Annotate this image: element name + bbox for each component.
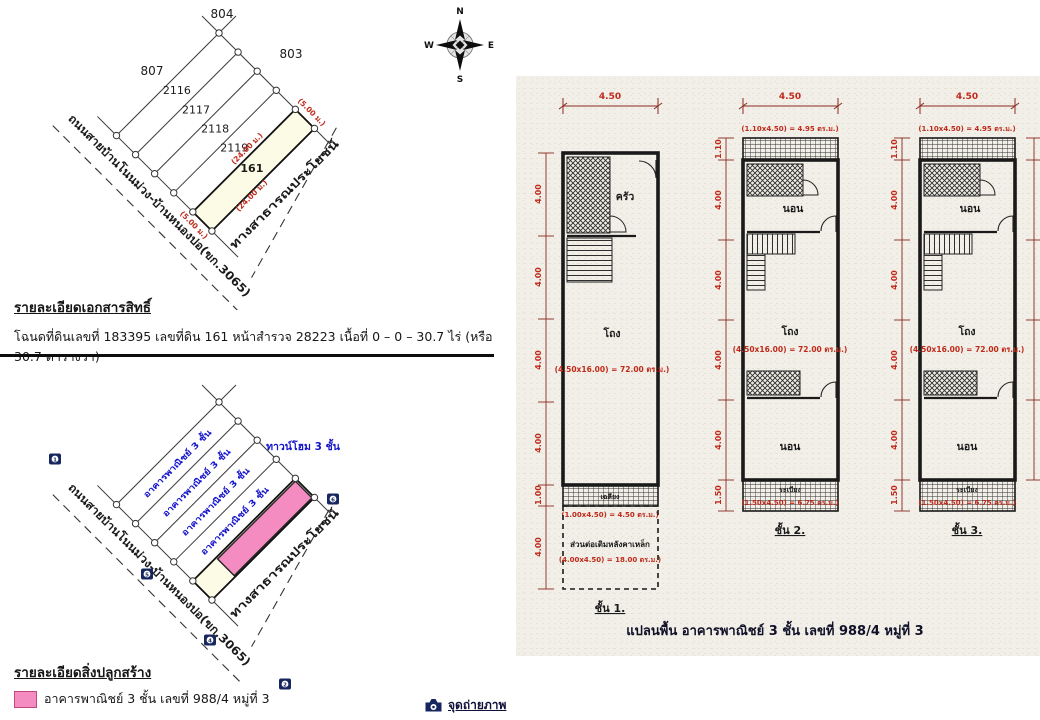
door-arc-upper	[821, 216, 836, 232]
compass-s: S	[457, 75, 463, 84]
balcony-area-text: (1.10x4.50) = 4.95 ตร.ม.)	[918, 125, 1015, 133]
hall-area-text: (4.50x16.00) = 72.00 ตร.ม.)	[733, 345, 848, 354]
floor-plan-1: 4.50 ครัว โถง (4.50x16.00) = 72.00 ตร.ม.…	[518, 88, 688, 633]
parcel-803: 803	[280, 47, 303, 61]
dim-label: 1.10	[890, 139, 899, 159]
porch-label: เฉลียง	[601, 493, 621, 501]
dim-label: 4.00	[714, 190, 723, 210]
front-balcony-hatch	[743, 138, 838, 160]
building-legend: รายละเอียดสิ่งปลูกสร้าง อาคารพาณิชย์ 3 ช…	[14, 661, 374, 709]
balcony-label: ระเบียง	[779, 486, 801, 494]
bathroom-hatch-mid	[747, 371, 800, 395]
parcel-number: 2118	[201, 122, 229, 135]
deed-details-heading: รายละเอียดเอกสารสิทธิ์	[14, 296, 504, 318]
room-label-hall: โถง	[957, 325, 975, 338]
kitchen-door-arc	[610, 216, 626, 232]
dim-label: 4.00	[714, 350, 723, 370]
strip-building-label: อาคารพาณิชย์ 3 ชั้น	[159, 445, 233, 519]
extension-area-text: (4.00x4.50) = 18.00 ตร.ม.)	[559, 556, 661, 564]
compass-rose: N S W E	[424, 4, 496, 84]
dim-label: 4.00	[714, 270, 723, 290]
plan2-width-dim: 4.50	[779, 92, 801, 102]
plan3-width-dim: 4.50	[956, 92, 978, 102]
dim-label: 4.00	[534, 537, 543, 557]
compass-n: N	[456, 7, 464, 17]
dim-label: 4.00	[534, 184, 543, 204]
plan2-floor-label: ชั้น 2.	[775, 522, 806, 537]
legend-item: อาคารพาณิชย์ 3 ชั้น เลขที่ 988/4 หมู่ที่…	[14, 689, 374, 709]
entrance-door-arc	[639, 160, 656, 178]
balcony-area-bottom-text: (1.50x4.50) = 6.75 ตร.ม.)	[918, 499, 1015, 507]
legend-pink-swatch	[14, 691, 37, 708]
hall-area-text: (4.50x16.00) = 72.00 ตร.ม.)	[910, 345, 1025, 354]
section-divider	[0, 354, 494, 357]
room-label-bed-top: นอน	[960, 203, 981, 215]
deed-details-body: โฉนดที่ดินเลขที่ 183395 เลขที่ดิน 161 หน…	[14, 327, 504, 367]
dim-label: 1.50	[714, 485, 723, 505]
photo-note: จุดถ่ายภาพ	[424, 696, 506, 715]
room-label-kitchen: ครัว	[616, 191, 635, 203]
deed-map-rotated-group: 2116 2117 2118 2119 161 (24.00 ม.) (24.0…	[53, 0, 386, 310]
legend-heading: รายละเอียดสิ่งปลูกสร้าง	[14, 661, 374, 683]
staircase-return-hatch	[747, 254, 765, 290]
parcel-number: 2116	[163, 84, 191, 97]
compass-arrows	[436, 19, 484, 71]
balcony-area-bottom-text: (1.50x4.50) = 6.75 ตร.ม.)	[741, 499, 838, 507]
camera-marker-number: 6	[331, 497, 335, 503]
camera-marker-icon: 4	[204, 635, 216, 646]
door-arc-upper	[998, 216, 1013, 232]
camera-icon	[424, 698, 443, 713]
plan2-interior	[747, 164, 836, 398]
room-label-hall: โถง	[780, 325, 798, 338]
scan-page: 2116 2117 2118 2119 161 (24.00 ม.) (24.0…	[0, 0, 1040, 720]
plan1-dim-chain	[538, 153, 554, 589]
staircase-run-hatch	[924, 234, 972, 254]
plan1-width-dim: 4.50	[599, 92, 621, 102]
floor-plan-3: 4.50 (1.10x4.50) = 4.95 ตร.ม.) นอน โถง (…	[862, 88, 1040, 633]
balcony-area-text: (1.10x4.50) = 4.95 ตร.ม.)	[741, 125, 838, 133]
dim-label: 4.00	[534, 350, 543, 370]
bathroom-door-arc	[803, 180, 818, 195]
balcony-label: ระเบียง	[956, 486, 978, 494]
dim-label: 4.00	[890, 350, 899, 370]
dim-label: 1.50	[890, 485, 899, 505]
dim-label: 4.00	[890, 270, 899, 290]
camera-marker-number: 4	[208, 638, 212, 644]
strip-building-label: อาคารพาณิชย์ 3 ชั้น	[178, 464, 252, 538]
room-label-hall: โถง	[602, 327, 620, 340]
dim-label: 4.00	[534, 267, 543, 287]
building-map-rotated-group: อาคารพาณิชย์ 3 ชั้น อาคารพาณิชย์ 3 ชั้น …	[53, 372, 386, 681]
dim-label: 4.00	[534, 433, 543, 453]
plan3-floor-label: ชั้น 3.	[952, 522, 983, 537]
parcel-807: 807	[141, 64, 164, 78]
plan1-floor-label: ชั้น 1.	[595, 600, 626, 615]
staircase-hatch	[567, 238, 612, 282]
parcel-boundaries	[97, 372, 357, 626]
dim-label: 4.00	[714, 430, 723, 450]
front-balcony-hatch	[920, 138, 1015, 160]
staircase-run-hatch	[747, 234, 795, 254]
porch-area-text: (1.00x4.50) = 4.50 ตร.ม.)	[561, 511, 658, 519]
room-label-bed-bottom: นอน	[957, 441, 978, 453]
bathroom-hatch-top	[924, 164, 980, 196]
bathroom-hatch-mid	[924, 371, 977, 395]
floor-plan-caption: แปลนพื้น อาคารพาณิชย์ 3 ชั้น เลขที่ 988/…	[545, 620, 1005, 641]
camera-marker-icon: 5	[141, 569, 153, 580]
hall-area-text: (4.50x16.00) = 72.00 ตร.ม.)	[555, 365, 670, 374]
door-arc-lower	[821, 382, 836, 398]
camera-marker-number: 5	[145, 572, 149, 578]
kitchen-wet-area-hatch	[567, 157, 610, 233]
parcel-804: 804	[211, 7, 234, 21]
compass-w: W	[424, 41, 434, 51]
dim-label: 4.00	[890, 190, 899, 210]
dim-label: 4.00	[890, 430, 899, 450]
subject-parcel-number: 161	[240, 162, 263, 175]
camera-marker-icon: 6	[327, 494, 339, 505]
photo-note-label: จุดถ่ายภาพ	[448, 696, 506, 715]
dim-label: 1.10	[714, 139, 723, 159]
door-arc-lower	[998, 382, 1013, 398]
strip-building-label: อาคารพาณิชย์ 3 ชั้น	[140, 426, 214, 500]
dim-label: 1.00	[534, 485, 543, 505]
floor-plan-2: 4.50 (1.10x4.50) = 4.95 ตร.ม.) นอน โถง (…	[700, 88, 870, 633]
room-label-bed-bottom: นอน	[780, 441, 801, 453]
compass-e: E	[488, 41, 494, 51]
room-label-bed-top: นอน	[783, 203, 804, 215]
camera-marker-icon: 1	[49, 454, 61, 465]
townhome-label: ทาวน์โฮม 3 ชั้น	[266, 438, 341, 453]
legend-item-label: อาคารพาณิชย์ 3 ชั้น เลขที่ 988/4 หมู่ที่…	[44, 689, 270, 709]
camera-marker-number: 1	[53, 457, 57, 463]
plan3-interior	[924, 164, 1013, 398]
bathroom-hatch-top	[747, 164, 803, 196]
extension-label: ส่วนต่อเติมหลังคาเหล็ก	[570, 538, 650, 549]
parcel-number: 2117	[182, 103, 210, 116]
plan1-interior	[567, 157, 656, 282]
bathroom-door-arc	[980, 180, 995, 195]
staircase-return-hatch	[924, 254, 942, 290]
